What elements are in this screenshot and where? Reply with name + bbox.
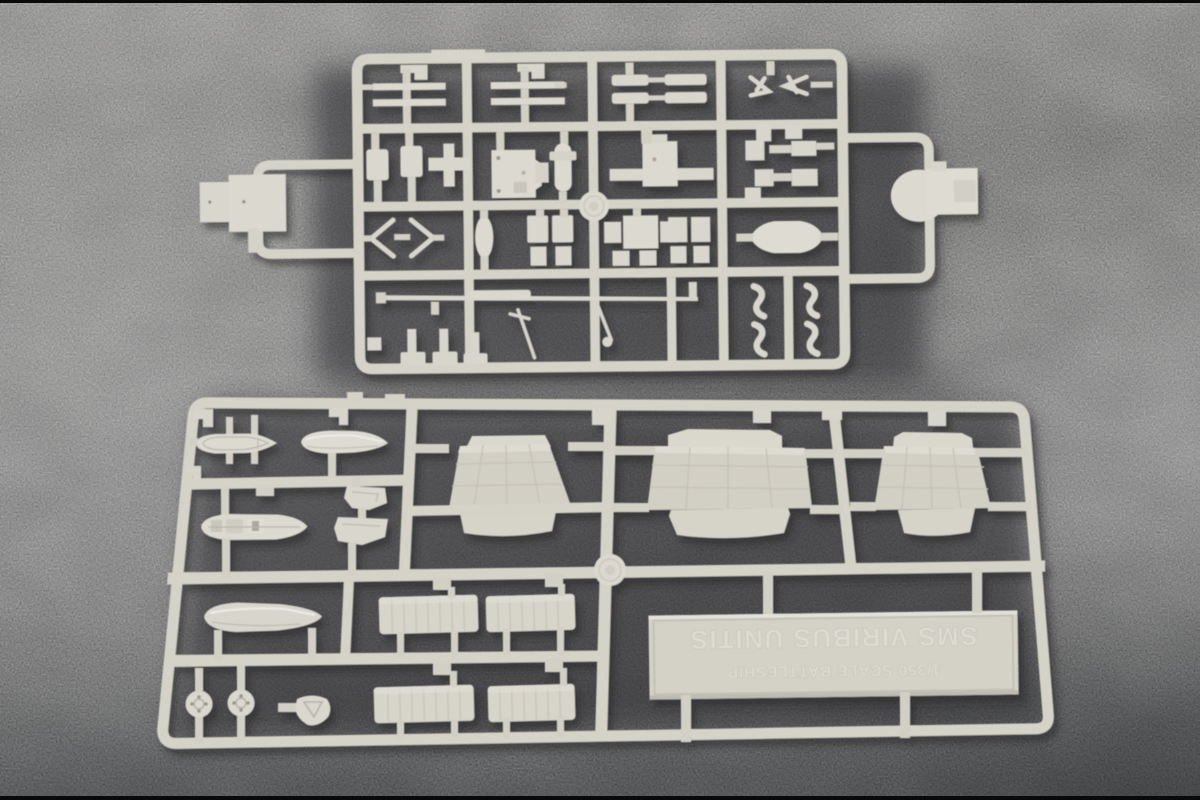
svg-text:1/350 SCALE BATTLESHIP: 1/350 SCALE BATTLESHIP	[727, 661, 941, 681]
svg-text:SMS VIRIBUS UNITIS: SMS VIRIBUS UNITIS	[689, 621, 978, 655]
